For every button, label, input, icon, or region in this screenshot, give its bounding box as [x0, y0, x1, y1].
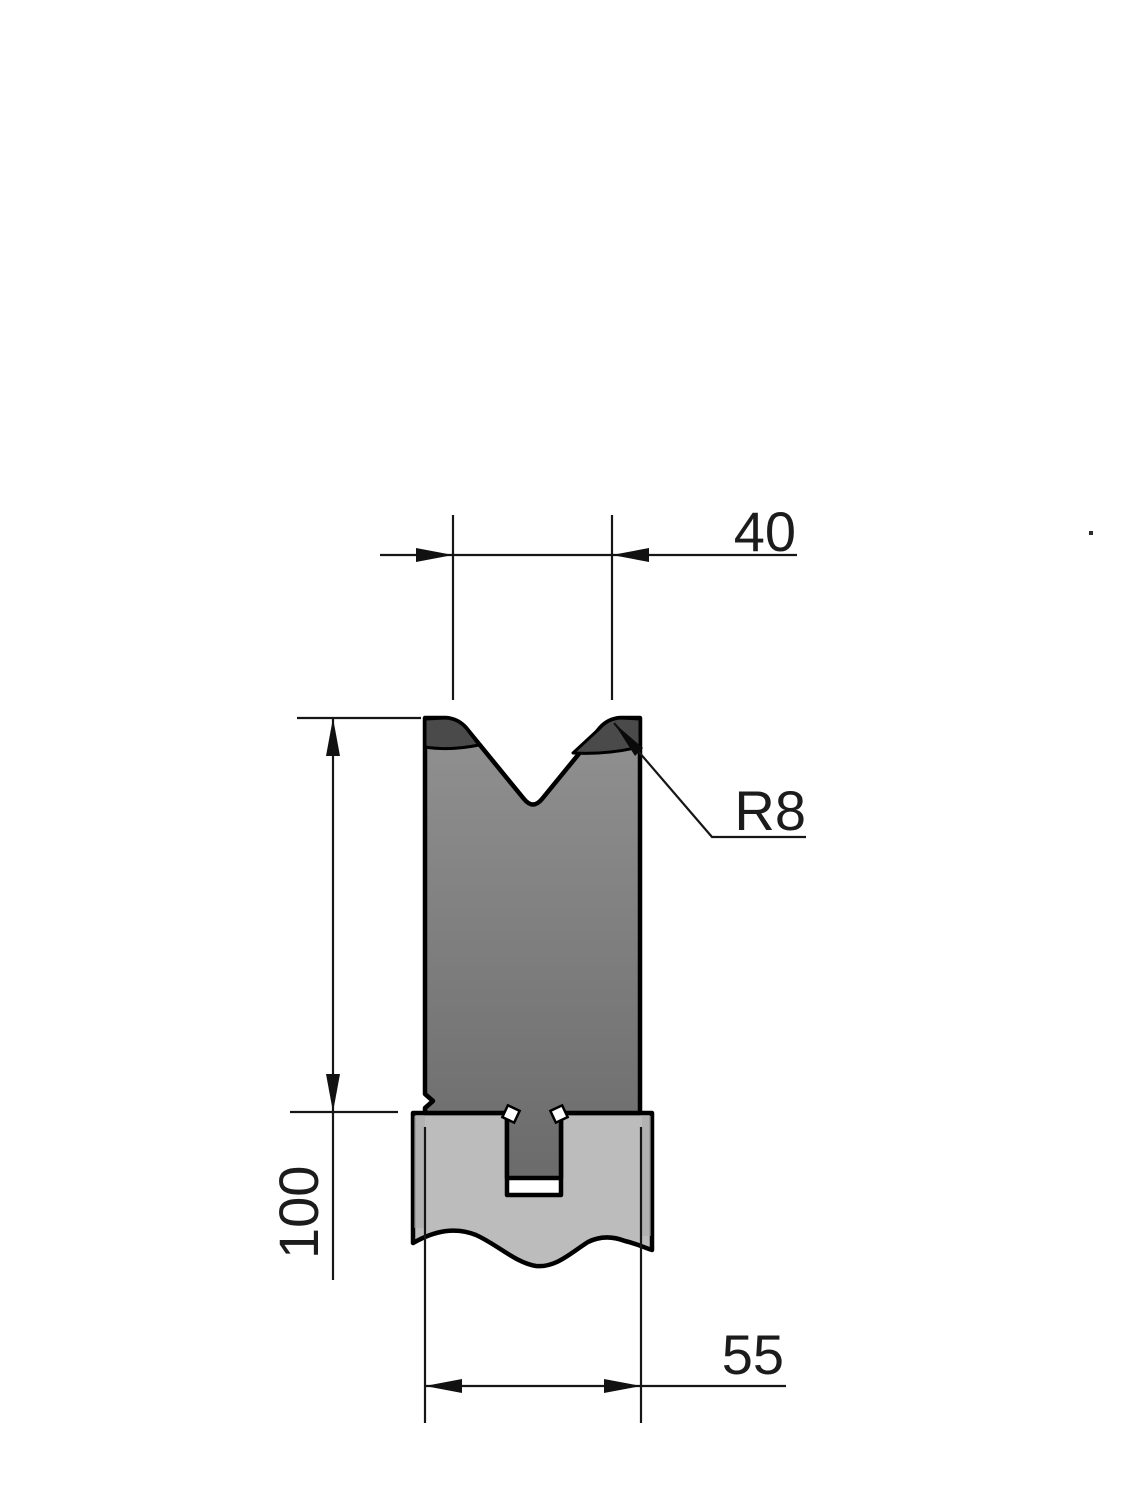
v-radius-band-left	[425, 718, 479, 749]
dim-label-radius: R8	[734, 779, 806, 842]
dim-label-bottom-width: 55	[722, 1323, 784, 1386]
holder-chamfer-right	[642, 1116, 651, 1236]
arrowhead	[425, 1379, 462, 1393]
stray-dot	[1089, 531, 1093, 535]
arrowhead	[604, 1379, 641, 1393]
arrowhead	[326, 718, 340, 756]
die-body	[425, 718, 640, 1178]
v-radius-band-right	[573, 718, 640, 753]
drawing-canvas: 40 100 55 R8	[0, 0, 1124, 1500]
holder-chamfer-left	[414, 1116, 425, 1228]
dim-label-height: 100	[267, 1166, 330, 1259]
technical-drawing: 40 100 55 R8	[0, 0, 1124, 1500]
arrowhead	[326, 1074, 340, 1112]
arrowhead	[612, 548, 649, 562]
arrowhead	[416, 548, 453, 562]
dim-label-top-width: 40	[734, 500, 796, 563]
